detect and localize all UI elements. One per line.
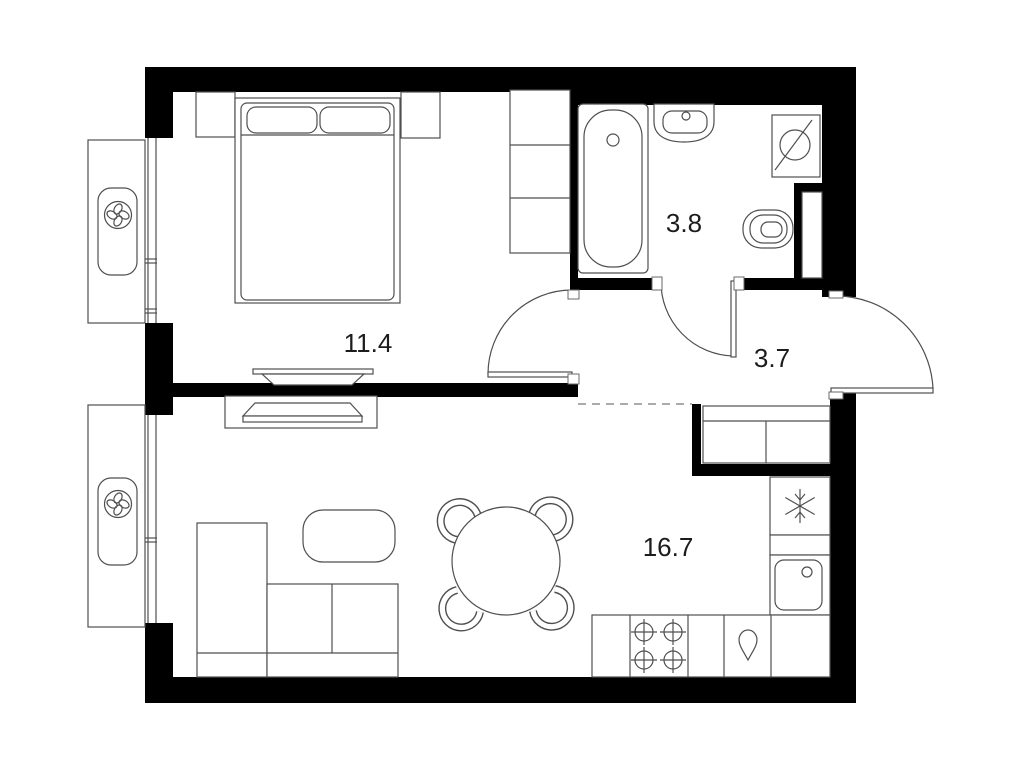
kitchen-fixtures bbox=[592, 477, 830, 677]
bathtub bbox=[578, 104, 648, 273]
washing-machine bbox=[772, 115, 820, 177]
room-label-bathroom: 3.8 bbox=[666, 208, 702, 238]
dining-table bbox=[452, 507, 560, 615]
vent-duct bbox=[802, 192, 822, 278]
room-label-hallway: 3.7 bbox=[754, 343, 790, 373]
nightstand-right bbox=[401, 92, 440, 138]
living-furniture bbox=[197, 396, 571, 677]
pillow-right bbox=[320, 107, 390, 133]
dining-set bbox=[441, 500, 571, 627]
counter-run bbox=[592, 615, 830, 677]
window-living bbox=[145, 415, 157, 623]
wardrobe-shelves bbox=[510, 90, 570, 253]
built-in-closet bbox=[703, 406, 830, 463]
bedroom-door bbox=[488, 290, 572, 377]
entry-door bbox=[831, 296, 933, 393]
floor-plan: 11.4 3.8 3.7 16.7 bbox=[0, 0, 1024, 768]
fridge bbox=[770, 477, 830, 535]
ac-basket-living bbox=[88, 405, 145, 627]
window-bedroom bbox=[145, 138, 157, 323]
room-label-bedroom: 11.4 bbox=[344, 328, 393, 358]
double-bed bbox=[235, 98, 400, 303]
door-leaf bbox=[731, 281, 736, 357]
ac-basket-bedroom bbox=[88, 140, 145, 323]
coffee-table bbox=[303, 510, 395, 562]
hallway-elements bbox=[578, 404, 830, 463]
bedroom-tv bbox=[253, 369, 373, 385]
toilet bbox=[743, 210, 793, 248]
pillow-left bbox=[247, 107, 317, 133]
nightstand-left bbox=[196, 92, 235, 137]
bathroom-door bbox=[661, 281, 736, 357]
door-leaf bbox=[488, 372, 572, 377]
bathroom-fixtures bbox=[578, 104, 820, 273]
door-leaf bbox=[831, 388, 933, 393]
door-jambs bbox=[568, 277, 843, 399]
tap-icon bbox=[802, 567, 812, 577]
room-label-living-kitchen: 16.7 bbox=[643, 532, 694, 562]
floor-plan-canvas: 11.4 3.8 3.7 16.7 bbox=[0, 0, 1024, 768]
tv-console bbox=[225, 396, 377, 428]
tap-icon bbox=[682, 112, 690, 120]
counter-segment bbox=[770, 535, 830, 555]
washbasin bbox=[654, 104, 714, 142]
kitchen-sink bbox=[770, 555, 830, 615]
